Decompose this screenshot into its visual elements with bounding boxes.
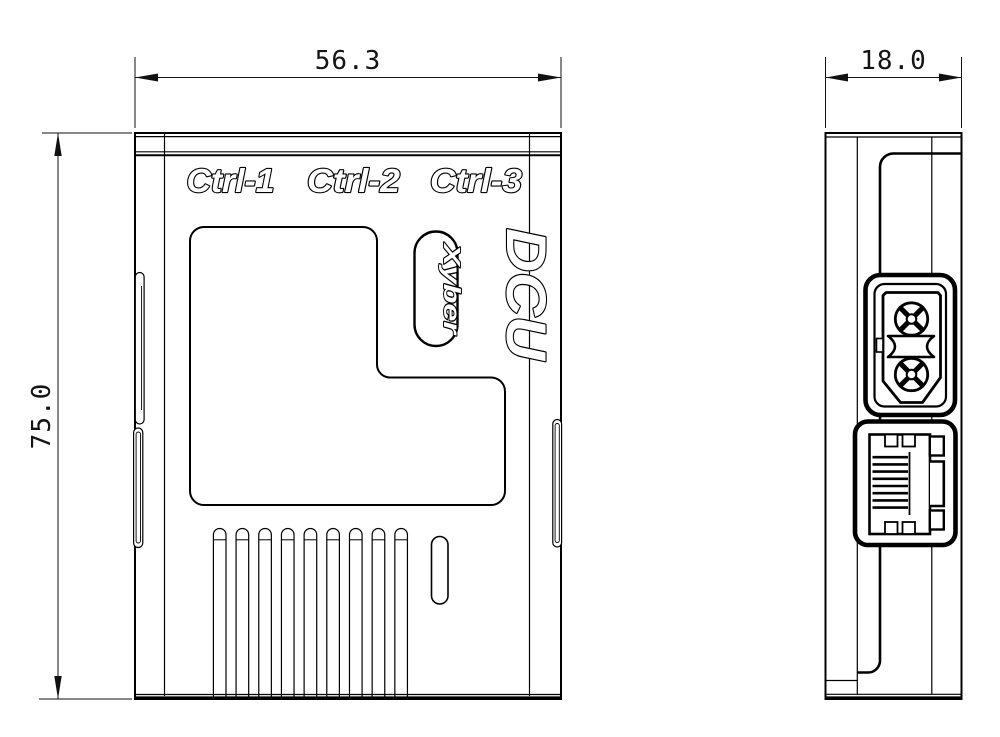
left-clip-lower: [134, 428, 143, 548]
power-screw-top: [895, 303, 927, 335]
clip-outline: [553, 420, 562, 548]
arrowhead-top: [54, 133, 61, 156]
ethernet-key-tab: [885, 522, 898, 534]
dim-depth: 18.0: [826, 46, 962, 128]
ethernet-key-tab: [885, 435, 898, 447]
ethernet-key-tab: [903, 435, 916, 447]
ctrl2-label: Ctrl-2: [307, 162, 401, 199]
clip-outline: [135, 273, 144, 425]
screw-hub: [907, 314, 917, 324]
right-clip: [553, 420, 562, 548]
dim-width: 56.3: [135, 46, 561, 128]
vent-slot: [304, 528, 317, 696]
vent-slots: [213, 528, 407, 696]
arrowhead-left: [135, 74, 158, 82]
width-dimension-text: 56.3: [315, 46, 382, 76]
arrowhead-right: [538, 74, 561, 82]
ctrl3-label: Ctrl-3: [430, 162, 522, 199]
power-key-notch: [877, 339, 884, 353]
ethernet-latch-slot: [930, 462, 944, 507]
front-view: Ctrl-1 Ctrl-2 Ctrl-3 DCU Xyber: [134, 133, 562, 699]
vent-slot: [281, 528, 294, 696]
left-clip-upper: [135, 273, 144, 425]
ethernet-corner-window-top: [930, 437, 944, 456]
ethernet-corner-window-bottom: [930, 511, 944, 530]
power-connector: [866, 275, 956, 415]
side-view: [826, 133, 962, 699]
vent-slot: [395, 528, 408, 696]
vent-slot: [259, 529, 272, 697]
vent-slot: [372, 528, 385, 696]
dcu-logo: DCU: [495, 228, 558, 362]
arrowhead-bottom: [54, 676, 61, 699]
dim-height: 75.0: [27, 133, 132, 699]
power-bowtie: [888, 336, 934, 357]
vent-slot: [236, 529, 249, 697]
vent-slot: [327, 528, 340, 696]
arrowhead-right: [939, 74, 962, 82]
ctrl1-label: Ctrl-1: [187, 162, 275, 199]
xyber-badge: Xyber: [415, 232, 466, 347]
screw-hub: [907, 370, 917, 380]
clip-outline: [134, 428, 143, 548]
power-screw-bottom: [895, 358, 927, 390]
drawing-svg: Ctrl-1 Ctrl-2 Ctrl-3 DCU Xyber: [0, 0, 1000, 737]
ethernet-opening: [870, 435, 931, 535]
vent-slot: [213, 528, 226, 696]
depth-dimension-text: 18.0: [860, 46, 927, 76]
ethernet-port: [855, 422, 956, 546]
oval-slot: [432, 537, 449, 605]
ethernet-key-tab: [903, 522, 916, 534]
vent-slot: [349, 529, 362, 697]
technical-drawing-canvas: Ctrl-1 Ctrl-2 Ctrl-3 DCU Xyber: [0, 0, 1000, 737]
height-dimension-text: 75.0: [27, 383, 57, 450]
arrowhead-left: [826, 74, 849, 82]
xyber-label: Xyber: [439, 241, 465, 335]
